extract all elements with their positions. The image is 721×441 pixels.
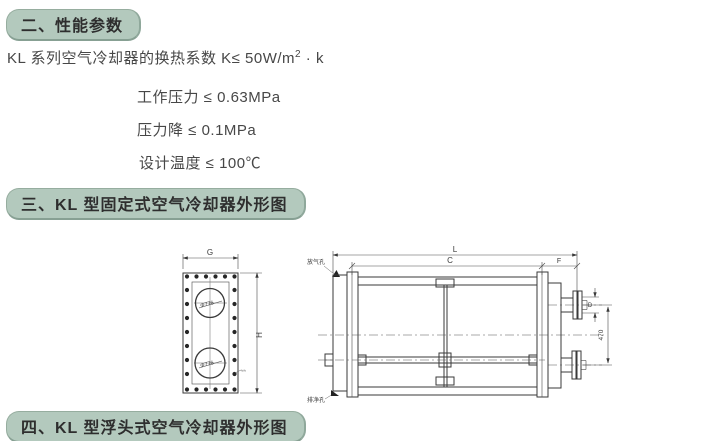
porthole-bottom-label: Φ776 [200,360,215,369]
dim-label-d: D [588,303,593,309]
right-channel [548,283,561,388]
section-3-header: 三、KL 型固定式空气冷却器外形图 [6,188,306,220]
divider-top-flange [436,279,454,287]
dim-label-g: G [207,248,213,257]
left-end-plate [333,275,347,391]
param-working-pressure: 工作压力 ≤ 0.63MPa [137,86,281,107]
divider-bottom-flange [436,377,454,385]
drain-label: 排净孔 [307,396,325,404]
front-outer-flange [183,273,238,393]
porthole-top-label: Φ776 [200,300,215,309]
vent-label: 放气孔 [307,258,325,266]
left-tube-sheet [347,272,358,397]
dim-label-h: H [255,332,264,338]
side-view: L C F 放气孔 [307,245,612,404]
section-4-header: 四、KL 型浮头式空气冷却器外形图 [6,411,306,441]
param-pressure-drop: 压力降 ≤ 0.1MPa [137,119,256,140]
dim-label-f: F [557,258,561,265]
heat-transfer-prefix: KL 系列空气冷却器的换热系数 K≤ 50W/m [7,50,295,67]
dim-label-c: C [447,256,453,265]
section-2-header: 二、性能参数 [6,9,141,41]
heat-transfer-line: KL 系列空气冷却器的换热系数 K≤ 50W/m2 · k [7,47,324,68]
outline-drawing: Φ776 Φ776 G H ≈≈ L [150,225,721,410]
dim-label-l: L [453,245,458,254]
right-tube-sheet [537,272,548,397]
heat-transfer-suffix: · k [301,50,324,67]
param-design-temperature: 设计温度 ≤ 100℃ [139,152,261,173]
front-view: Φ776 Φ776 G H ≈≈ [183,248,264,393]
front-view-note: ≈≈ [241,368,246,373]
dim-label-470: 470 [598,329,605,340]
document-page: 二、性能参数 KL 系列空气冷却器的换热系数 K≤ 50W/m2 · k 工作压… [0,0,721,441]
